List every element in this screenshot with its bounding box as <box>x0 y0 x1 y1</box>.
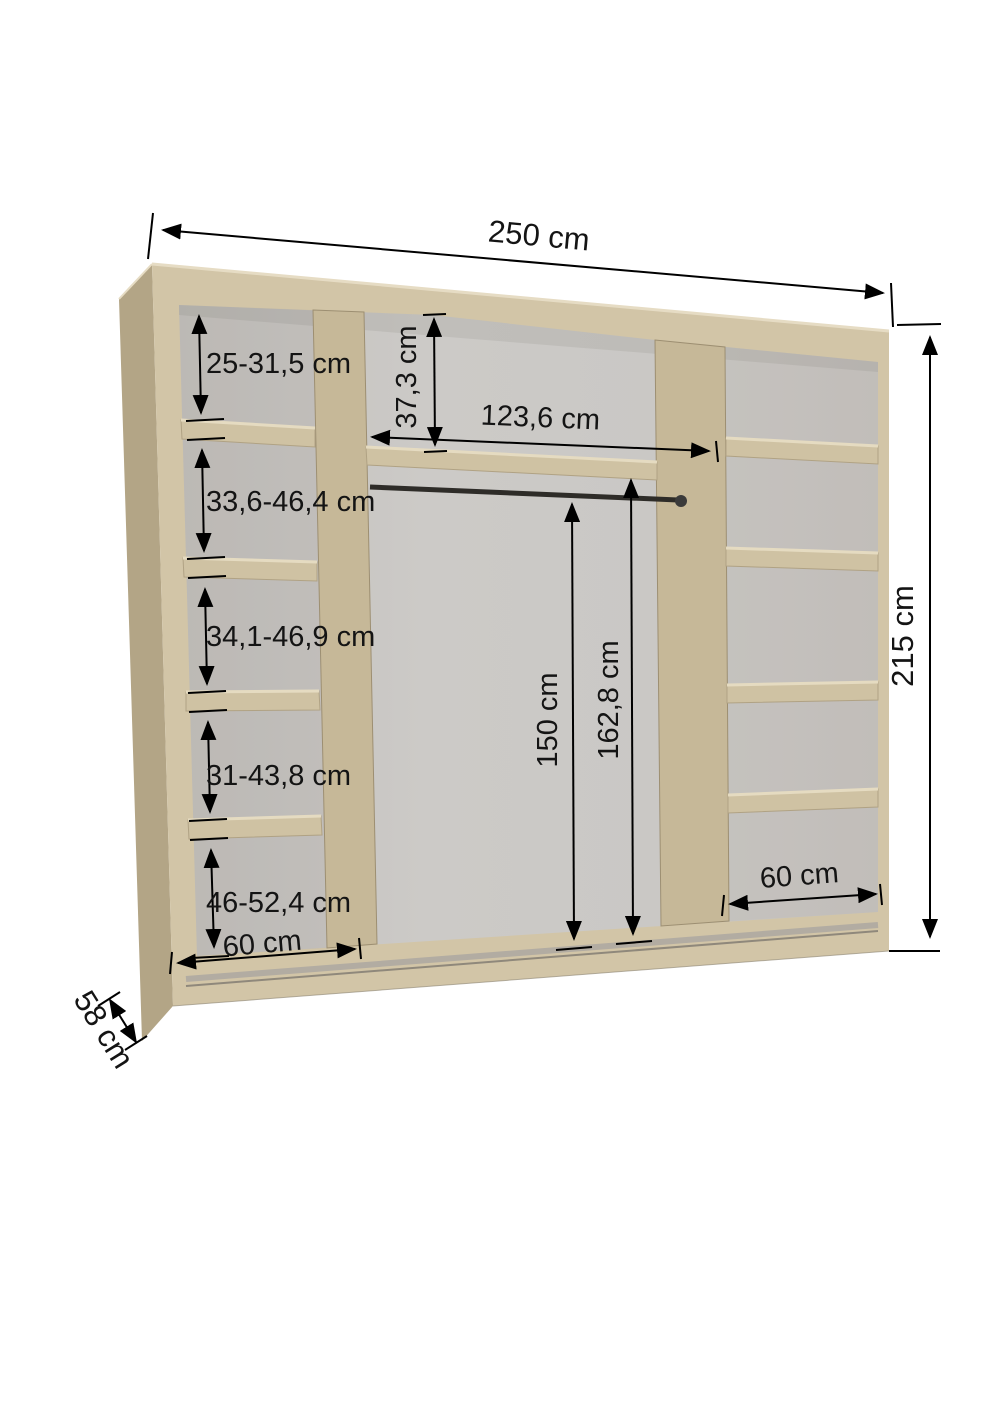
dimension-tick <box>897 324 941 325</box>
label-depth: 58 cm <box>67 984 141 1074</box>
label-left-compartment-2: 33,6-46,4 cm <box>206 486 375 518</box>
label-left-compartment-5: 46-52,4 cm <box>206 887 351 919</box>
wardrobe-diagram-page: 250 cm 215 cm 58 cm 25-31,5 cm 33,6-46,4… <box>0 0 992 1403</box>
hanging-rod-bracket <box>675 495 687 507</box>
dimension-line <box>434 319 435 445</box>
label-middle-height: 162,8 cm <box>593 640 625 759</box>
label-left-compartment-3: 34,1-46,9 cm <box>206 621 375 653</box>
dimension-tick <box>423 314 446 315</box>
label-overall-height: 215 cm <box>885 585 920 687</box>
label-left-compartment-4: 31-43,8 cm <box>206 760 351 792</box>
dimension-tick <box>891 283 893 327</box>
dimension-tick <box>424 451 447 452</box>
shelf <box>186 691 320 711</box>
label-rod-height: 150 cm <box>532 672 564 767</box>
label-right-width: 60 cm <box>759 857 840 895</box>
right-column-back-shade <box>725 347 878 921</box>
right-divider <box>655 340 729 926</box>
label-left-compartment-1: 25-31,5 cm <box>206 348 351 380</box>
label-middle-width: 123,6 cm <box>480 400 601 437</box>
label-overall-width: 250 cm <box>487 214 591 258</box>
dimension-tick <box>148 213 153 259</box>
label-top-compartment: 37,3 cm <box>391 325 423 428</box>
wardrobe-diagram: 250 cm 215 cm 58 cm 25-31,5 cm 33,6-46,4… <box>0 0 992 1403</box>
